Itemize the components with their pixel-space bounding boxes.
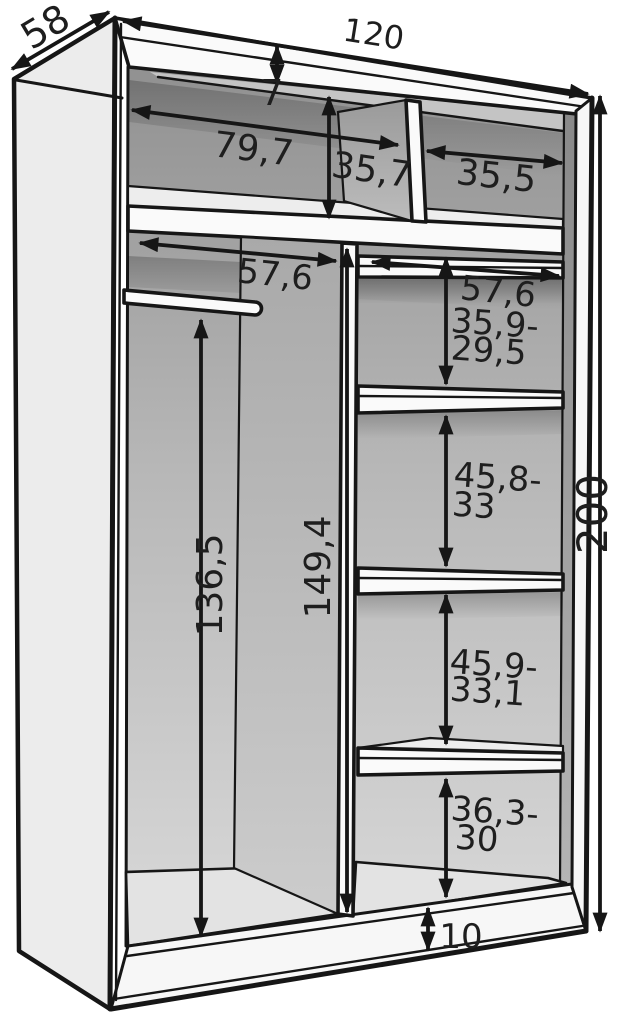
shelf-right-2 xyxy=(358,386,563,439)
shelf-right-3-front xyxy=(358,568,563,594)
label-width-35-5: 35,5 xyxy=(454,152,538,201)
label-total-height-200: 200 xyxy=(568,474,617,554)
shelf-right-4 xyxy=(358,738,563,775)
shelf-right-4-front xyxy=(358,748,563,775)
shelf-right-2-front xyxy=(358,386,563,413)
label-gap-4-line-2: 30 xyxy=(454,818,500,861)
label-gap-1-line-2: 29,5 xyxy=(450,328,528,373)
label-rod-height-136-5: 136,5 xyxy=(190,533,231,636)
label-partition-height-149-4: 149,4 xyxy=(298,515,339,618)
label-depth-57-6-left: 57,6 xyxy=(235,251,314,299)
shelf-right-3 xyxy=(358,568,563,620)
label-plinth-10: 10 xyxy=(439,917,482,957)
left-front-inner-line xyxy=(116,24,121,1000)
label-gap-3-line-2: 33,1 xyxy=(449,669,527,714)
wardrobe-dimension-diagram: 58 120 7 79,7 35,7 35,5 57,6 57,6 35,9- … xyxy=(0,0,620,1020)
shelf-right-2-shadow xyxy=(358,410,563,439)
label-top-thickness-7: 7 xyxy=(261,73,284,114)
wardrobe-diagram-page: 58 120 7 79,7 35,7 35,5 57,6 57,6 35,9- … xyxy=(0,0,620,1020)
label-width-120: 120 xyxy=(341,11,407,58)
label-gap-2-line-2: 33 xyxy=(451,485,497,528)
shelf-right-3-shadow xyxy=(358,592,563,620)
left-side-panel xyxy=(14,18,115,1009)
